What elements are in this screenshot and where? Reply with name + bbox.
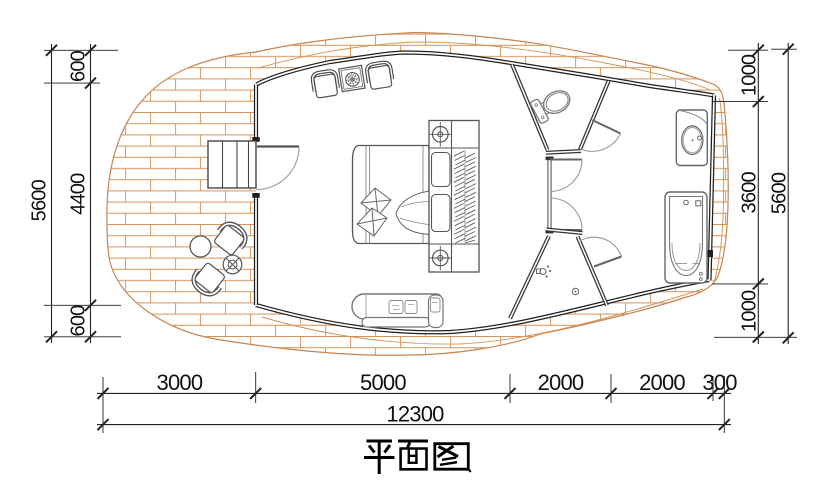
svg-text:1000: 1000	[739, 54, 761, 96]
svg-text:2000: 2000	[639, 370, 685, 395]
svg-text:5000: 5000	[360, 370, 406, 395]
svg-text:4400: 4400	[68, 173, 90, 215]
svg-text:2000: 2000	[538, 370, 584, 395]
svg-text:5600: 5600	[769, 172, 791, 214]
svg-text:5600: 5600	[29, 179, 51, 221]
svg-text:3600: 3600	[739, 171, 761, 213]
svg-text:1000: 1000	[739, 290, 761, 332]
svg-text:12300: 12300	[386, 402, 444, 427]
svg-text:600: 600	[68, 50, 90, 82]
svg-text:600: 600	[68, 305, 90, 337]
svg-text:3000: 3000	[157, 370, 203, 395]
svg-text:300: 300	[702, 370, 737, 395]
